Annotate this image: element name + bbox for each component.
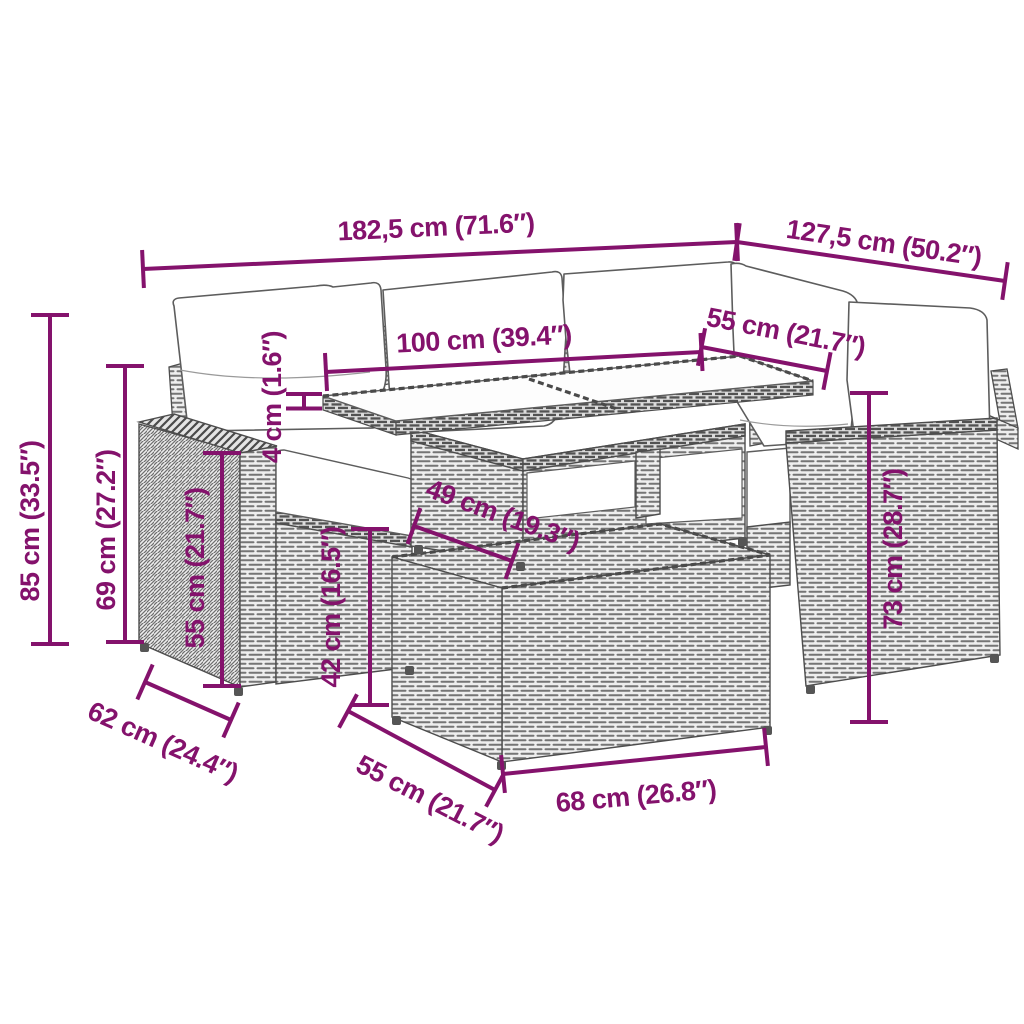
svg-text:73 cm (28.7″): 73 cm (28.7″): [878, 468, 908, 629]
svg-text:69 cm (27.2″): 69 cm (27.2″): [91, 449, 121, 610]
svg-text:42 cm (16.5″): 42 cm (16.5″): [316, 526, 346, 687]
svg-text:85 cm (33.5″): 85 cm (33.5″): [15, 440, 45, 601]
svg-text:4 cm (1.6″): 4 cm (1.6″): [257, 331, 287, 463]
svg-text:55 cm (21.7″): 55 cm (21.7″): [180, 487, 210, 648]
